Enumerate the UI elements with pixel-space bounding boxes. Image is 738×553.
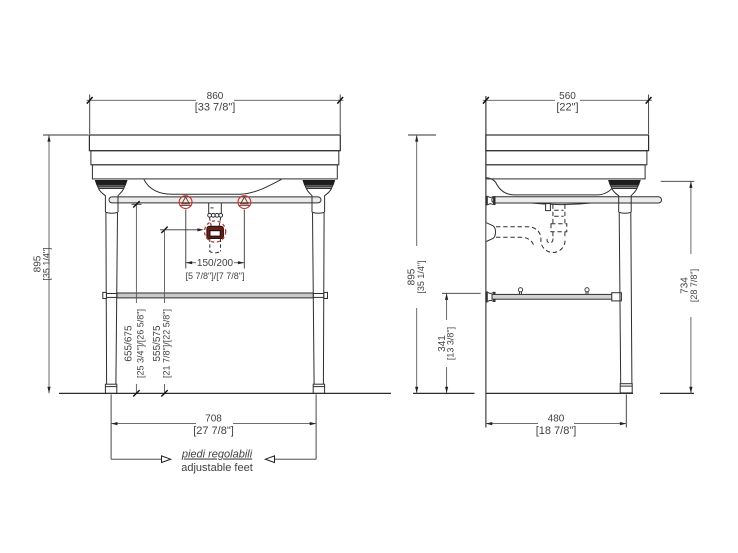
svg-text:[35 1/4"]: [35 1/4"] — [416, 260, 426, 293]
svg-text:560: 560 — [559, 91, 576, 102]
svg-text:[27 7/8"]: [27 7/8"] — [193, 425, 234, 437]
svg-text:adjustable feet: adjustable feet — [181, 462, 253, 474]
svg-text:[18 7/8"]: [18 7/8"] — [536, 425, 577, 437]
svg-text:[22"]: [22"] — [556, 102, 578, 114]
svg-text:[35 1/4"]: [35 1/4"] — [42, 247, 52, 280]
svg-text:[13 3/8"]: [13 3/8"] — [445, 327, 455, 360]
svg-text:480: 480 — [548, 414, 565, 425]
svg-text:[33 7/8"]: [33 7/8"] — [195, 102, 236, 114]
svg-text:655/675: 655/675 — [123, 325, 134, 362]
svg-text:[25 3/4"]/[26 5/8"]: [25 3/4"]/[26 5/8"] — [135, 309, 145, 378]
svg-text:860: 860 — [207, 91, 224, 102]
svg-text:[21 7/8"]/[22 5/8"]: [21 7/8"]/[22 5/8"] — [161, 309, 171, 378]
svg-text:708: 708 — [205, 414, 222, 425]
svg-text:[5 7/8"]/[7 7/8"]: [5 7/8"]/[7 7/8"] — [186, 271, 245, 281]
svg-text:[28 7/8"]: [28 7/8"] — [689, 269, 699, 302]
svg-text:150/200: 150/200 — [197, 258, 234, 269]
svg-text:piedi regolabili: piedi regolabili — [181, 449, 253, 461]
